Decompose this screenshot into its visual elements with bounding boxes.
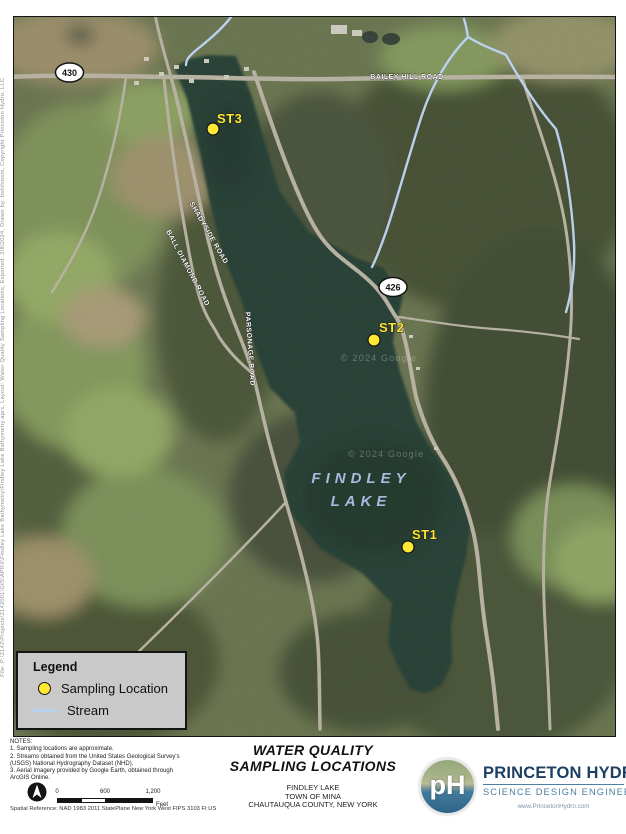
legend-title: Legend	[33, 660, 185, 674]
file-info-text: File: P:\2142\Projects\2142001\GIS\APRX\…	[0, 76, 6, 677]
sampling-location-swatch-icon	[38, 682, 51, 695]
station-label-st2: ST2	[379, 320, 404, 335]
ph-logo-icon: pH	[419, 758, 476, 815]
notes-block: NOTES: 1. Sampling locations are approxi…	[10, 739, 180, 783]
route-shield-426: 426	[385, 283, 400, 293]
logo-monogram: pH	[430, 770, 466, 801]
legend-item-stream: Stream	[33, 703, 185, 718]
north-arrow-icon	[27, 782, 47, 807]
aerial-map: © 2024 Google © 2024 Google BAILEY HILL …	[14, 17, 616, 737]
station-marker-st1	[402, 541, 414, 553]
imagery-credit-watermark: © 2024 Google	[341, 353, 417, 363]
scale-tick: 600	[100, 789, 110, 795]
route-shield-430: 430	[62, 68, 77, 78]
station-label-st1: ST1	[412, 527, 437, 542]
legend-item-sampling: Sampling Location	[33, 681, 185, 696]
notes-line: 2. Streams obtained from the United Stat…	[10, 754, 180, 761]
scale-tick: 0	[55, 789, 58, 795]
file-info-sidebar: File: P:\2142\Projects\2142001\GIS\APRX\…	[0, 16, 12, 737]
map-frame: © 2024 Google © 2024 Google BAILEY HILL …	[13, 16, 616, 737]
notes-line: NOTES:	[10, 739, 180, 746]
princeton-hydro-logo: pH PRINCETON HYDRO SCIENCE DESIGN ENGINE…	[419, 758, 619, 815]
legend-stream-label: Stream	[67, 703, 109, 718]
lake-name-line2: LAKE	[331, 493, 392, 510]
logo-website: www.PrincetonHydro.com	[483, 803, 624, 810]
notes-line: 3. Aerial Imagery provided by Google Ear…	[10, 768, 180, 775]
logo-tagline: SCIENCE DESIGN ENGINEERING	[483, 784, 624, 797]
legend: Legend Sampling Location Stream	[16, 651, 187, 730]
stream-swatch-icon	[32, 709, 58, 712]
legend-sampling-label: Sampling Location	[61, 681, 168, 696]
notes-line: (USGS) National Hydrography Dataset (NHD…	[10, 761, 180, 768]
station-marker-st2	[368, 334, 380, 346]
notes-line: 1. Sampling locations are approximate.	[10, 746, 180, 753]
imagery-grain	[14, 17, 616, 737]
lake-name-line1: FINDLEY	[311, 470, 410, 487]
map-title-line1: WATER QUALITY	[158, 743, 468, 759]
station-label-st3: ST3	[217, 111, 242, 126]
logo-company-name: PRINCETON HYDRO	[483, 764, 624, 783]
road-label-bailey-hill: BAILEY HILL ROAD	[370, 74, 443, 81]
map-sheet: File: P:\2142\Projects\2142001\GIS\APRX\…	[0, 0, 626, 834]
imagery-credit-watermark: © 2024 Google	[348, 449, 424, 459]
